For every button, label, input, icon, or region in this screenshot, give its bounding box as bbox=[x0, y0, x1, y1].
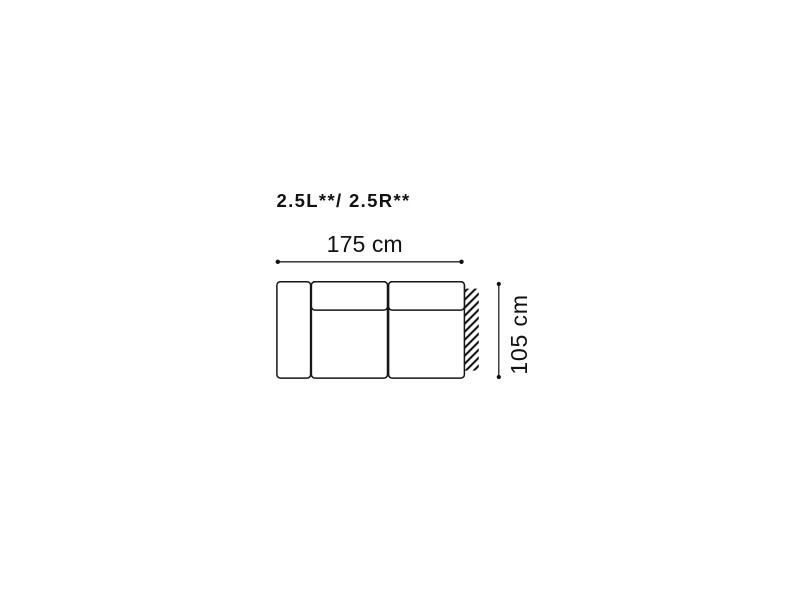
svg-text:175 cm: 175 cm bbox=[327, 231, 403, 257]
svg-text:2.5L**/ 2.5R**: 2.5L**/ 2.5R** bbox=[277, 190, 411, 211]
svg-text:105 cm: 105 cm bbox=[506, 294, 532, 375]
